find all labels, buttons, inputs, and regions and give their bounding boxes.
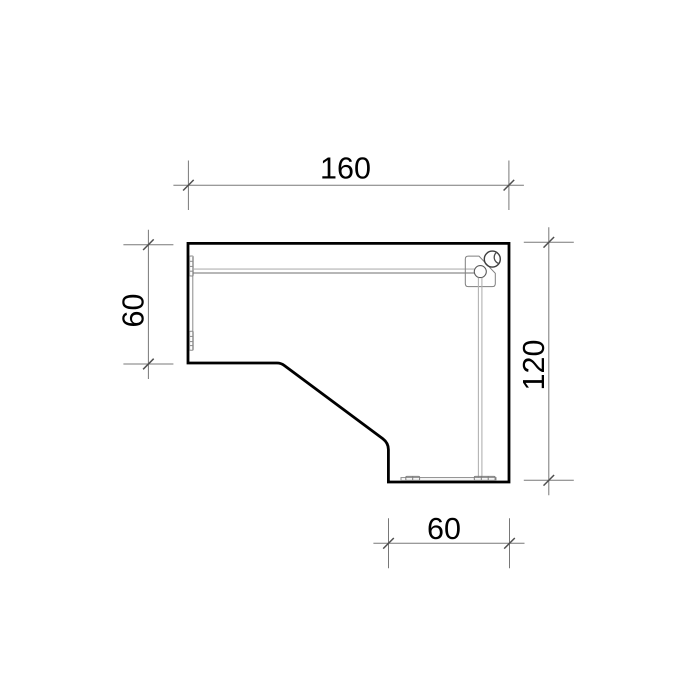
svg-text:60: 60 [427, 512, 461, 546]
svg-text:120: 120 [517, 340, 551, 391]
svg-text:60: 60 [117, 294, 151, 328]
svg-text:160: 160 [320, 152, 371, 186]
